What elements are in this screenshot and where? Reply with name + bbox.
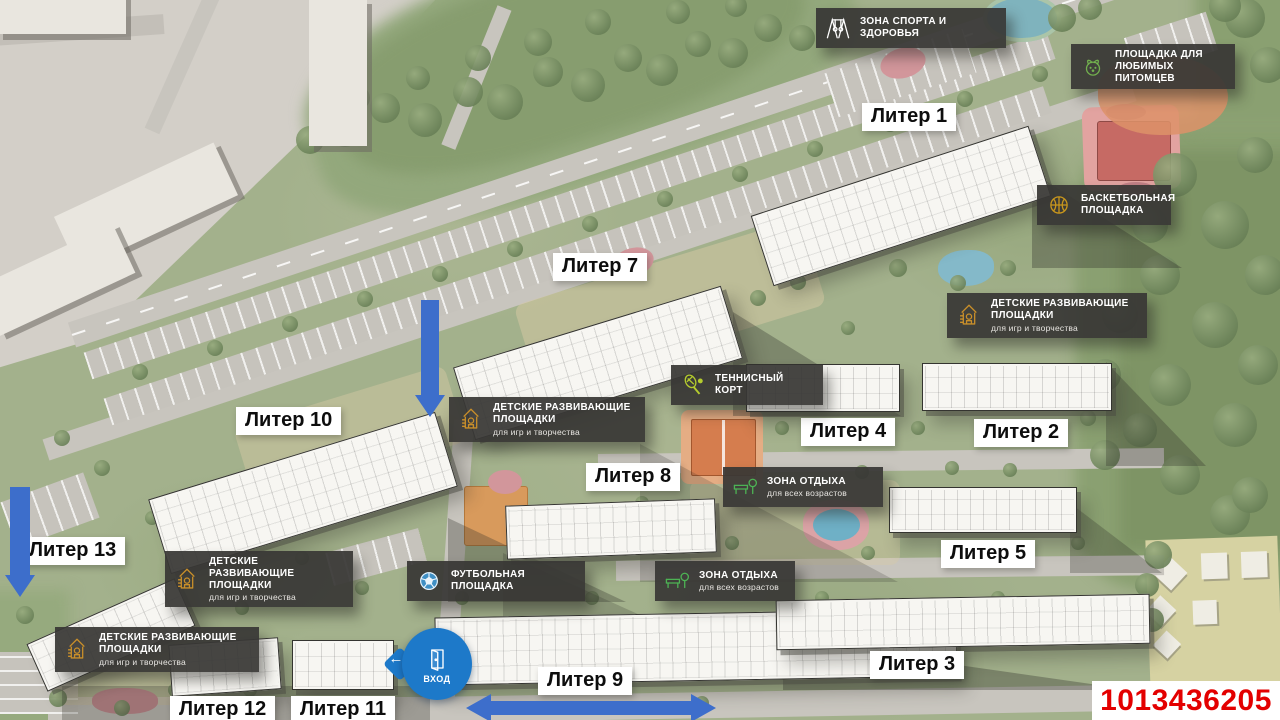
amenity-title: ПЛОЩАДКА ДЛЯ ЛЮБИМЫХ ПИТОМЦЕВ	[1115, 49, 1226, 84]
amenity-label-plate: ЗОНА СПОРТА И ЗДОРОВЬЯ	[816, 8, 1006, 48]
amenity-label-text: ДЕТСКИЕ РАЗВИВАЮЩИЕ ПЛОЩАДКИдля игр и тв…	[991, 298, 1138, 333]
door-icon	[425, 645, 449, 673]
amenity-label-text: ДЕТСКИЕ РАЗВИВАЮЩИЕ ПЛОЩАДКИдля игр и тв…	[209, 556, 344, 602]
amenity-label-text: ПЛОЩАДКА ДЛЯ ЛЮБИМЫХ ПИТОМЦЕВ	[1115, 49, 1226, 84]
amenity-label-text: ЗОНА СПОРТА И ЗДОРОВЬЯ	[860, 16, 997, 40]
bench-icon	[662, 566, 692, 596]
amenity-title: ДЕТСКИЕ РАЗВИВАЮЩИЕ ПЛОЩАДКИ	[209, 556, 344, 591]
amenity-label-text: ДЕТСКИЕ РАЗВИВАЮЩИЕ ПЛОЩАДКИдля игр и тв…	[493, 402, 636, 437]
amenity-label-plate: ДЕТСКИЕ РАЗВИВАЮЩИЕ ПЛОЩАДКИдля игр и тв…	[165, 551, 353, 607]
amenity-subtitle: для игр и творчества	[493, 427, 636, 437]
amenity-label-plate: ДЕТСКИЕ РАЗВИВАЮЩИЕ ПЛОЩАДКИдля игр и тв…	[55, 627, 259, 672]
direction-arrow-down	[10, 487, 30, 577]
amenity-subtitle: для всех возрастов	[699, 582, 779, 592]
basketball-icon	[1044, 190, 1074, 220]
amenity-label-plate: ПЛОЩАДКА ДЛЯ ЛЮБИМЫХ ПИТОМЦЕВ	[1071, 44, 1235, 89]
dog-icon	[1078, 52, 1108, 82]
playhouse-icon	[62, 634, 92, 664]
amenity-title: ДЕТСКИЕ РАЗВИВАЮЩИЕ ПЛОЩАДКИ	[99, 632, 250, 656]
amenity-title: ЗОНА СПОРТА И ЗДОРОВЬЯ	[860, 16, 997, 40]
amenity-label-plate: БАСКЕТБОЛЬНАЯ ПЛОЩАДКА	[1037, 185, 1171, 225]
amenity-title: ЗОНА ОТДЫХА	[767, 476, 847, 488]
amenity-subtitle: для игр и творчества	[209, 592, 344, 602]
direction-arrow-down-head	[5, 575, 35, 597]
amenity-title: БАСКЕТБОЛЬНАЯ ПЛОЩАДКА	[1081, 193, 1162, 217]
amenity-label-plate: ЗОНА ОТДЫХАдля всех возрастов	[655, 561, 795, 601]
amenity-title: ФУТБОЛЬНАЯ ПЛОЩАДКА	[451, 569, 576, 593]
direction-arrow-down-head	[415, 395, 445, 417]
amenity-label-text: ДЕТСКИЕ РАЗВИВАЮЩИЕ ПЛОЩАДКИдля игр и тв…	[99, 632, 250, 667]
gym-icon	[823, 13, 853, 43]
amenity-label-plate: ТЕННИСНЫЙ КОРТ	[671, 365, 823, 405]
amenity-label-text: ЗОНА ОТДЫХАдля всех возрастов	[699, 570, 779, 593]
amenity-title: ЗОНА ОТДЫХА	[699, 570, 779, 582]
amenity-label-text: ЗОНА ОТДЫХАдля всех возрастов	[767, 476, 847, 499]
entrance-badge: ВХОД	[402, 628, 472, 700]
amenity-title: ТЕННИСНЫЙ КОРТ	[715, 373, 814, 397]
site-plan-map: Литер 1Литер 7Литер 10Литер 4Литер 2Лите…	[0, 0, 1280, 720]
bench-icon	[730, 472, 760, 502]
amenity-label-plate: ЗОНА ОТДЫХАдля всех возрастов	[723, 467, 883, 507]
direction-arrow-down	[421, 300, 439, 397]
photo-id: 1013436205	[1092, 681, 1280, 720]
direction-arrow-left-head	[466, 694, 491, 720]
amenity-label-plate: ДЕТСКИЕ РАЗВИВАЮЩИЕ ПЛОЩАДКИдля игр и тв…	[449, 397, 645, 442]
amenity-title: ДЕТСКИЕ РАЗВИВАЮЩИЕ ПЛОЩАДКИ	[493, 402, 636, 426]
direction-arrow-right-head	[691, 694, 716, 720]
amenity-label-text: БАСКЕТБОЛЬНАЯ ПЛОЩАДКА	[1081, 193, 1162, 217]
direction-arrow-horizontal	[490, 701, 692, 715]
amenity-label-plate: ФУТБОЛЬНАЯ ПЛОЩАДКА	[407, 561, 585, 601]
amenity-label-text: ТЕННИСНЫЙ КОРТ	[715, 373, 814, 397]
amenity-label-text: ФУТБОЛЬНАЯ ПЛОЩАДКА	[451, 569, 576, 593]
playhouse-icon	[456, 404, 486, 434]
playhouse-icon	[172, 564, 202, 594]
entrance-label: ВХОД	[423, 674, 450, 684]
amenity-label-plate: ДЕТСКИЕ РАЗВИВАЮЩИЕ ПЛОЩАДКИдля игр и тв…	[947, 293, 1147, 338]
amenity-subtitle: для всех возрастов	[767, 488, 847, 498]
playhouse-icon	[954, 300, 984, 330]
amenity-labels-layer: ЗОНА СПОРТА И ЗДОРОВЬЯПЛОЩАДКА ДЛЯ ЛЮБИМ…	[0, 0, 1280, 720]
amenity-subtitle: для игр и творчества	[99, 657, 250, 667]
amenity-title: ДЕТСКИЕ РАЗВИВАЮЩИЕ ПЛОЩАДКИ	[991, 298, 1138, 322]
amenity-subtitle: для игр и творчества	[991, 323, 1138, 333]
tennis-icon	[678, 370, 708, 400]
soccer-icon	[414, 566, 444, 596]
